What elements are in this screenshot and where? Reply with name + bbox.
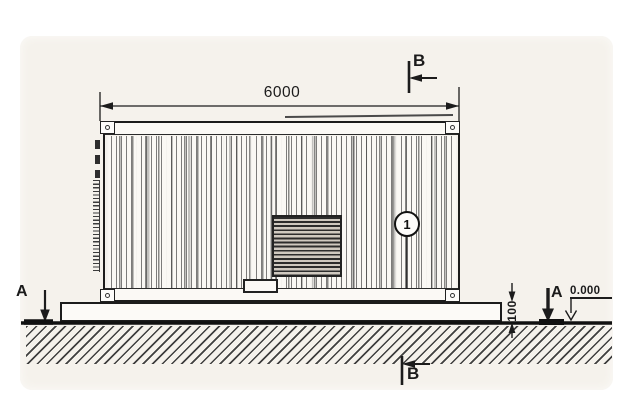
fitting-hole-icon [450,125,455,130]
container-bottom-rail [105,288,458,300]
section-a-left-label: A [16,283,28,301]
height-dimension-label: 100 [498,299,526,323]
container-top-rail [105,123,458,135]
section-a-right-label: A [551,284,563,302]
elevation-drawing: 1 6000 B B A A 0.000 100 [0,0,630,420]
level-mark-label: 0.000 [570,285,614,297]
corner-fitting-bottom-right [445,289,460,302]
section-b-bottom-label: B [407,364,419,384]
corner-fitting-top-right [445,121,460,134]
corner-fitting-bottom-left [100,289,115,302]
fitting-hole-icon [450,293,455,298]
step-box [243,279,278,293]
length-dimension-label: 6000 [252,84,312,102]
door-hinge-marks [95,140,100,178]
ground-hatch [26,326,612,364]
callout-bubble-1: 1 [394,211,420,237]
section-b-top-label: B [413,51,425,71]
fitting-hole-icon [105,125,110,130]
louver-grille [272,215,342,277]
side-ladder [93,180,100,272]
corner-fitting-top-left [100,121,115,134]
fitting-hole-icon [105,293,110,298]
callout-number: 1 [403,217,410,232]
foundation-slab [60,302,502,322]
